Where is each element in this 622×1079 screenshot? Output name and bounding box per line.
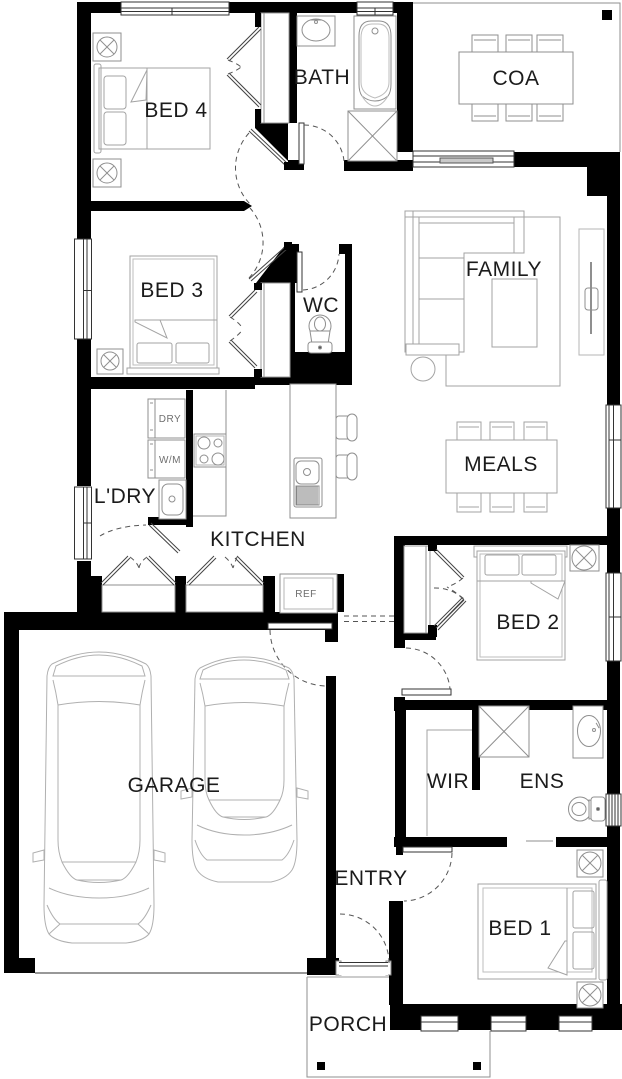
svg-text:FAMILY: FAMILY: [466, 258, 542, 281]
svg-text:ENTRY: ENTRY: [334, 867, 407, 890]
svg-text:W/M: W/M: [159, 455, 181, 466]
svg-text:REF: REF: [295, 589, 317, 600]
svg-text:BATH: BATH: [294, 66, 350, 89]
svg-text:BED 4: BED 4: [144, 99, 207, 122]
svg-text:BED 2: BED 2: [496, 611, 559, 634]
svg-text:BED 1: BED 1: [488, 917, 551, 940]
svg-text:L'DRY: L'DRY: [94, 485, 156, 508]
svg-text:PORCH: PORCH: [309, 1013, 387, 1036]
svg-text:WC: WC: [303, 294, 339, 317]
svg-text:MEALS: MEALS: [464, 453, 538, 476]
svg-text:ENS: ENS: [520, 770, 565, 793]
svg-text:COA: COA: [492, 67, 539, 90]
svg-text:BED 3: BED 3: [140, 279, 203, 302]
svg-text:WIR: WIR: [427, 770, 469, 793]
svg-text:KITCHEN: KITCHEN: [210, 528, 306, 551]
svg-text:GARAGE: GARAGE: [128, 774, 221, 797]
svg-text:DRY: DRY: [159, 414, 181, 425]
